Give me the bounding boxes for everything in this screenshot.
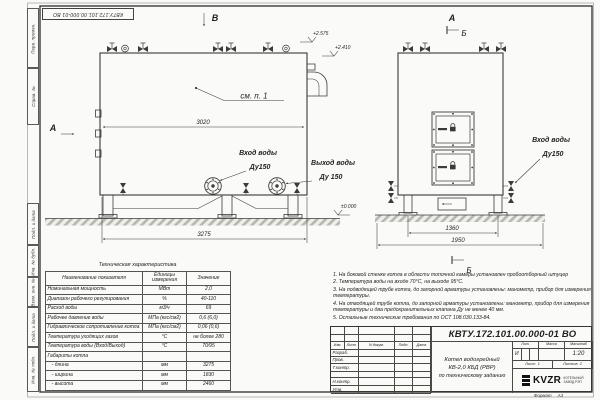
stamp-margin-label: Инв. № подл. — [27, 347, 39, 392]
note-item: 4. На отводящей трубе котла, до запорной… — [333, 301, 591, 315]
stamp-margin-label: Перв. примен. — [27, 8, 39, 68]
tech-row: Гидравлическое сопротивление котлаМПа (к… — [46, 323, 231, 333]
tech-cell: 1830 — [187, 371, 231, 381]
document-name: Котел водогрейный КВ-2,0 КБД (РВР) по те… — [431, 342, 513, 393]
dim-1950-group: 1950 — [377, 223, 543, 249]
signature-row: Н.контр. — [331, 378, 431, 385]
tech-cell: - высота — [46, 380, 143, 390]
note-item: 3. На подводящей трубе котла, до запорно… — [333, 287, 591, 301]
view-label-A-top: А — [448, 13, 456, 23]
note-item: 2. Температура воды на входе 70°С, на вы… — [333, 279, 591, 286]
lit-mass-scale-values: И 1:20 — [513, 348, 593, 361]
valve-icon — [420, 43, 430, 52]
signature-row: Т.контр. — [331, 364, 431, 371]
tech-cell: не более 280 — [187, 333, 231, 343]
signature-rows: Разраб. Пров. Т.контр. Н.контр. Утв. — [331, 349, 431, 393]
tech-row: Температура уходящих газов°Сне более 280 — [46, 333, 231, 343]
tech-cell: Рабочее давление воды — [46, 314, 143, 324]
section-mark-top: Б — [447, 26, 467, 38]
tech-cell: Температура воды (Вход/Выход) — [46, 342, 143, 352]
logo-subtitle: КОТЕЛЬНЫЙ ЗАВОД РЭП — [564, 377, 584, 385]
tech-cell: Номинальная мощность — [46, 285, 143, 295]
svg-text:+2.575: +2.575 — [313, 31, 329, 37]
tech-cell: 40-110 — [187, 295, 231, 305]
tech-cell: Диапазон рабочего регулирования — [46, 295, 143, 305]
tech-cell: Гидравлическое сопротивление котла — [46, 323, 143, 333]
svg-text:А: А — [49, 123, 57, 133]
boiler-body-front — [398, 53, 503, 195]
tech-cell: 0,06 (0,6) — [187, 323, 231, 333]
tech-row: - длинамм3275 — [46, 361, 231, 371]
drawing-sheet: 3020 см. п. 1 3275 — [0, 0, 600, 400]
svg-text:Ду150: Ду150 — [542, 151, 564, 158]
note-item: 1. На боковой стенке котла в области топ… — [333, 272, 591, 279]
tech-table-title: Техническая характеристика — [45, 262, 230, 268]
flange-top-icon — [122, 45, 129, 52]
svg-text:Б: Б — [461, 29, 466, 38]
inverted-designation-box: КВТУ.172.101.00.000-01 ВО — [42, 8, 134, 20]
ash-box — [438, 198, 466, 210]
tech-cell: - длина — [46, 361, 143, 371]
format-label: ФорматА3 — [505, 393, 592, 398]
valve-icon — [138, 43, 148, 52]
logo-mark-icon — [522, 375, 530, 386]
valve-icon — [213, 43, 223, 52]
tech-cell: мм — [143, 380, 187, 390]
side-view: 3020 см. п. 1 3275 — [45, 13, 356, 243]
signature-row — [331, 371, 431, 378]
tech-cell: °С — [143, 342, 187, 352]
tech-cell: мм — [143, 361, 187, 371]
tech-cell: МПа (кгс/см2) — [143, 323, 187, 333]
svg-text:Выход воды: Выход воды — [311, 159, 355, 167]
ground-hatch-front — [375, 215, 545, 222]
mass-value — [539, 348, 565, 361]
tech-header: Единицы измерения — [143, 272, 187, 286]
svg-text:Ду150: Ду150 — [249, 164, 271, 171]
signature-row: Пров. — [331, 356, 431, 363]
valve-icon — [496, 43, 506, 52]
logo-text: KVZR — [533, 375, 561, 386]
title-block: КВТУ.172.101.00.000-01 ВО Изм. Лист N до… — [330, 326, 592, 392]
tech-cell: МПа (кгс/см2) — [143, 314, 187, 324]
valve-icon — [479, 43, 489, 52]
view-label-B: В — [204, 13, 219, 26]
tech-cell: 0,6 (6,0) — [187, 314, 231, 324]
stamp-margin-label: Подп. и дата — [27, 203, 39, 245]
valve-icon — [226, 43, 236, 52]
tech-cell: 2460 — [187, 380, 231, 390]
signature-header-row: Изм. Лист N докум. Подп. Дата — [331, 342, 431, 349]
tech-row: Диапазон рабочего регулирования%40-110 — [46, 295, 231, 305]
tech-cell: 69 — [187, 304, 231, 314]
dim-3275: 3275 — [197, 232, 211, 238]
front-view: 1360 1950 А Б Б Вход воды Ду150 — [375, 13, 570, 275]
tech-cell: МВт — [143, 285, 187, 295]
lower-door — [432, 150, 474, 185]
lit-value: И — [513, 348, 522, 361]
stamp-margin-label: Справ. № — [27, 68, 39, 125]
tech-cell: 3275 — [187, 361, 231, 371]
inlet-label-front: Вход воды Ду150 — [515, 136, 570, 183]
revision-grid — [331, 327, 431, 342]
tech-row: Температура воды (Вход/Выход)°С70/95 — [46, 342, 231, 352]
svg-text:Вход воды: Вход воды — [532, 136, 570, 144]
manufacturer-logo: KVZR КОТЕЛЬНЫЙ ЗАВОД РЭП — [513, 368, 593, 393]
tech-cell: Габариты котла — [46, 352, 143, 362]
callout-see-note-1: см. п. 1 — [195, 87, 284, 101]
dim-1360: 1360 — [445, 226, 459, 232]
stamp-margin-label: Взам. инв. № — [27, 277, 39, 307]
tech-cell: 70/95 — [187, 342, 231, 352]
note-item: 5. Остальные технические требования по О… — [333, 315, 591, 322]
tech-cell — [187, 352, 231, 362]
sheet-row: Лист 1 Листов 2 — [513, 361, 593, 368]
valve-icon — [107, 43, 117, 52]
tech-header: Наименование показателя — [46, 272, 143, 286]
tech-cell: % — [143, 295, 187, 305]
stamp-margin-label: Инв. № дубл. — [27, 245, 39, 277]
tech-header-row: Наименование показателя Единицы измерени… — [46, 272, 231, 286]
dim-3020: 3020 — [196, 120, 210, 126]
svg-text:см. п. 1: см. п. 1 — [240, 92, 267, 101]
tech-cell: Температура уходящих газов — [46, 333, 143, 343]
tech-cell: мм — [143, 371, 187, 381]
svg-text:±0.000: ±0.000 — [341, 204, 356, 210]
tech-row: - высотамм2460 — [46, 380, 231, 390]
drain-valve-icon — [120, 183, 126, 193]
scale-value: 1:20 — [565, 348, 593, 361]
tech-cell: Расход воды — [46, 304, 143, 314]
tech-cell: 2,0 — [187, 285, 231, 295]
signature-row: Разраб. — [331, 349, 431, 356]
valve-icon — [263, 43, 273, 52]
tech-row: Габариты котла — [46, 352, 231, 362]
tech-row: Расход водым3/ч69 — [46, 304, 231, 314]
tech-row: Номинальная мощностьМВт2,0 — [46, 285, 231, 295]
view-label-A-left: А — [49, 123, 74, 134]
tech-cell: м3/ч — [143, 304, 187, 314]
side-supports — [99, 195, 302, 218]
svg-text:Вход воды: Вход воды — [239, 149, 277, 157]
document-designation: КВТУ.172.101.00.000-01 ВО — [431, 327, 593, 342]
tech-cell: - ширина — [46, 371, 143, 381]
technical-notes: 1. На боковой стенке котла в области топ… — [333, 272, 591, 322]
outlet-label-side: Выход воды Ду 150 — [286, 159, 355, 184]
tech-cell — [143, 352, 187, 362]
tech-row: Рабочее давление водыМПа (кгс/см2)0,6 (6… — [46, 314, 231, 324]
svg-text:Ду 150: Ду 150 — [319, 174, 343, 181]
tech-cell: °С — [143, 333, 187, 343]
tech-row: - ширинамм1830 — [46, 371, 231, 381]
tech-header: Значение — [187, 272, 231, 286]
side-stub-valves — [388, 181, 514, 203]
upper-door — [432, 112, 474, 147]
ground-hatch — [45, 219, 340, 226]
valve-icon — [403, 43, 413, 52]
tech-table: Наименование показателя Единицы измерени… — [45, 271, 231, 391]
flue-outlet — [307, 64, 327, 96]
inlet-label-side: Вход воды Ду150 — [220, 149, 277, 181]
svg-text:А: А — [448, 13, 456, 23]
drain-valve-icon — [243, 183, 249, 193]
svg-text:В: В — [212, 13, 219, 23]
signature-row: Утв. — [331, 386, 431, 393]
flange-top-icon — [283, 45, 290, 52]
stamp-margin-label: Подп. и дата — [27, 307, 39, 347]
dim-1950: 1950 — [451, 238, 465, 244]
drain-valve-icon — [294, 183, 300, 193]
svg-text:+2.410: +2.410 — [335, 45, 351, 51]
water-inlet-flange — [205, 178, 222, 195]
water-outlet-flange — [269, 178, 286, 195]
elevation-marks: +2.575 +2.410 ±0.000 — [300, 31, 356, 215]
